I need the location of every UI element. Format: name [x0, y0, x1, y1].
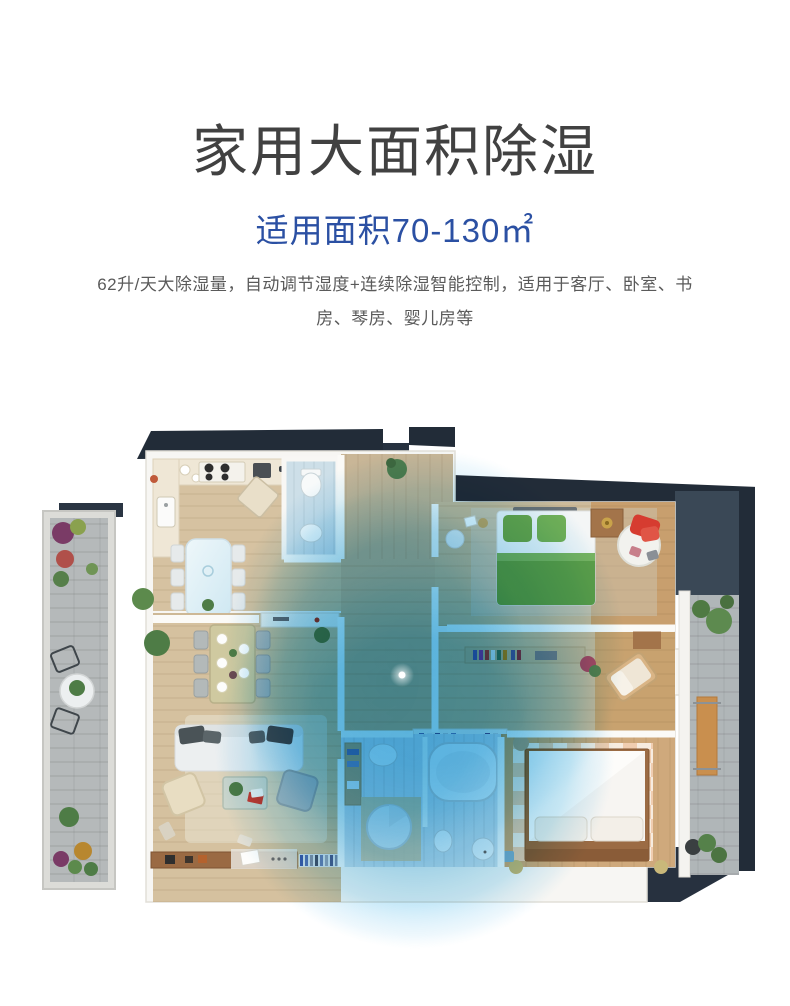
kitchen-flower-pot: [150, 475, 158, 483]
table-plant: [202, 599, 214, 611]
living-palm-1: [132, 588, 154, 610]
balcony-right: [679, 591, 739, 877]
living-palm-2: [144, 630, 170, 656]
applicable-area-subtitle: 适用面积70-130㎡: [0, 211, 790, 251]
product-description: 62升/天大除湿量，自动调节湿度+连续除湿智能控制，适用于客厅、卧室、书房、琴房…: [75, 268, 715, 334]
product-page-section: 家用大面积除湿 适用面积70-130㎡ 62升/天大除湿量，自动调节湿度+连续除…: [0, 0, 790, 1006]
kitchen-appliance: [253, 463, 271, 478]
exterior-light-panel: [675, 491, 739, 595]
dresser: [591, 509, 623, 537]
dehumidifier-location-dot: [390, 663, 414, 687]
hero-text-block: 家用大面积除湿 适用面积70-130㎡ 62升/天大除湿量，自动调节湿度+连续除…: [0, 0, 790, 335]
dehumidification-coverage-overlay: [215, 449, 625, 949]
bedside-lamp-right: [654, 860, 668, 874]
description-line-1: 62升/天大除湿量，自动调节湿度+连续除湿智能控制，适用于客厅、卧室、书: [97, 275, 693, 294]
study-side-table: [633, 631, 661, 649]
floorplan-illustration: [35, 398, 755, 980]
description-line-2: 房、琴房、婴儿房等: [316, 309, 474, 328]
balcony-left: [43, 511, 115, 889]
stove-cooktop: [199, 462, 245, 482]
balcony-bench: [693, 697, 721, 775]
kitchen-sink: [157, 497, 175, 527]
page-title: 家用大面积除湿: [0, 0, 790, 189]
